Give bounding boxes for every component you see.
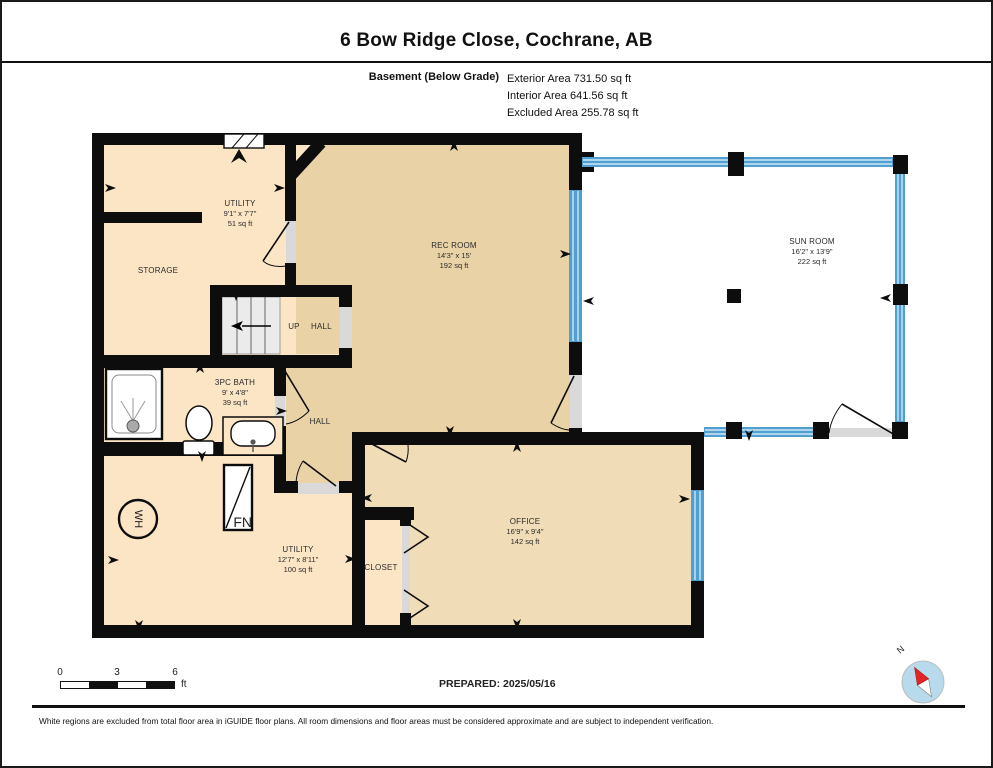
room-label-bath: 3PC BATH 9' x 4'8" 39 sq ft xyxy=(215,378,255,408)
scale-tick-0: 0 xyxy=(57,667,63,678)
staircase xyxy=(222,297,280,354)
scale-bar: 0 3 6 ft xyxy=(52,667,212,679)
room-label-utility-top: UTILITY 9'1" x 7'7" 51 sq ft xyxy=(224,199,257,229)
room-label-up-hall: UP HALL xyxy=(288,322,332,332)
water-heater-label: WH xyxy=(132,510,144,528)
office-window xyxy=(691,490,704,581)
room-label-hall: HALL xyxy=(310,417,331,427)
shower xyxy=(106,369,162,439)
floorplan-drawing: FN WH xyxy=(2,2,993,768)
disclaimer-text: White regions are excluded from total fl… xyxy=(39,716,959,726)
toilet xyxy=(183,406,214,455)
room-label-closet: CLOSET xyxy=(364,563,397,573)
room-label-utility-bottom: UTILITY 12'7" x 8'11" 100 sq ft xyxy=(278,545,319,575)
furnace: FN xyxy=(224,465,252,530)
room-label-rec-room: REC ROOM 14'3" x 15' 192 sq ft xyxy=(431,241,477,271)
scale-strip xyxy=(60,681,175,689)
scale-tick-3: 3 xyxy=(114,667,120,678)
north-label: N xyxy=(895,644,906,656)
prepared-date: PREPARED: 2025/05/16 xyxy=(439,678,556,690)
sun-room-center-column xyxy=(727,289,741,303)
footer-divider xyxy=(32,705,965,708)
compass: N xyxy=(890,640,956,710)
sink-vanity xyxy=(223,417,283,455)
scale-tick-6: 6 xyxy=(172,667,178,678)
floorplan-page: 6 Bow Ridge Close, Cochrane, AB Basement… xyxy=(0,0,993,768)
scale-unit: ft xyxy=(181,679,187,690)
room-label-office: OFFICE 16'9" x 9'4" 142 sq ft xyxy=(507,517,544,547)
rec-room-window xyxy=(569,190,582,342)
furnace-label: FN xyxy=(233,514,252,530)
shower-drain xyxy=(127,420,139,432)
sun-room-window-bottom xyxy=(704,427,829,437)
room-label-sun-room: SUN ROOM 16'2" x 13'9" 222 sq ft xyxy=(789,237,835,267)
room-label-storage: STORAGE xyxy=(138,266,178,276)
